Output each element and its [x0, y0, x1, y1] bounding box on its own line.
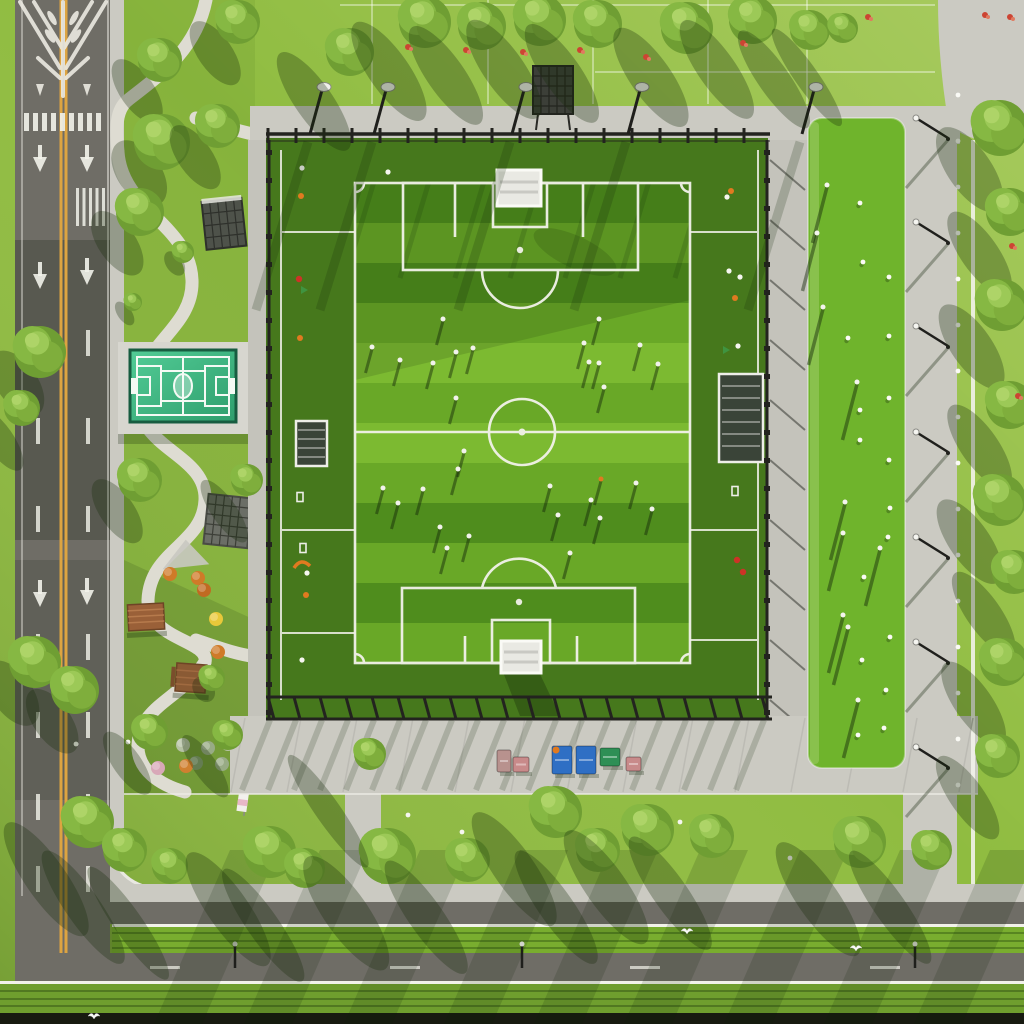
park-goal-cage — [201, 195, 246, 250]
bench-right — [719, 374, 763, 462]
aerial-photo — [0, 0, 1024, 1024]
mini-court — [118, 342, 248, 444]
stadium-field — [266, 138, 768, 720]
practice-field — [803, 118, 906, 768]
aerial-scene — [0, 0, 1024, 1024]
bench-left — [296, 421, 327, 466]
